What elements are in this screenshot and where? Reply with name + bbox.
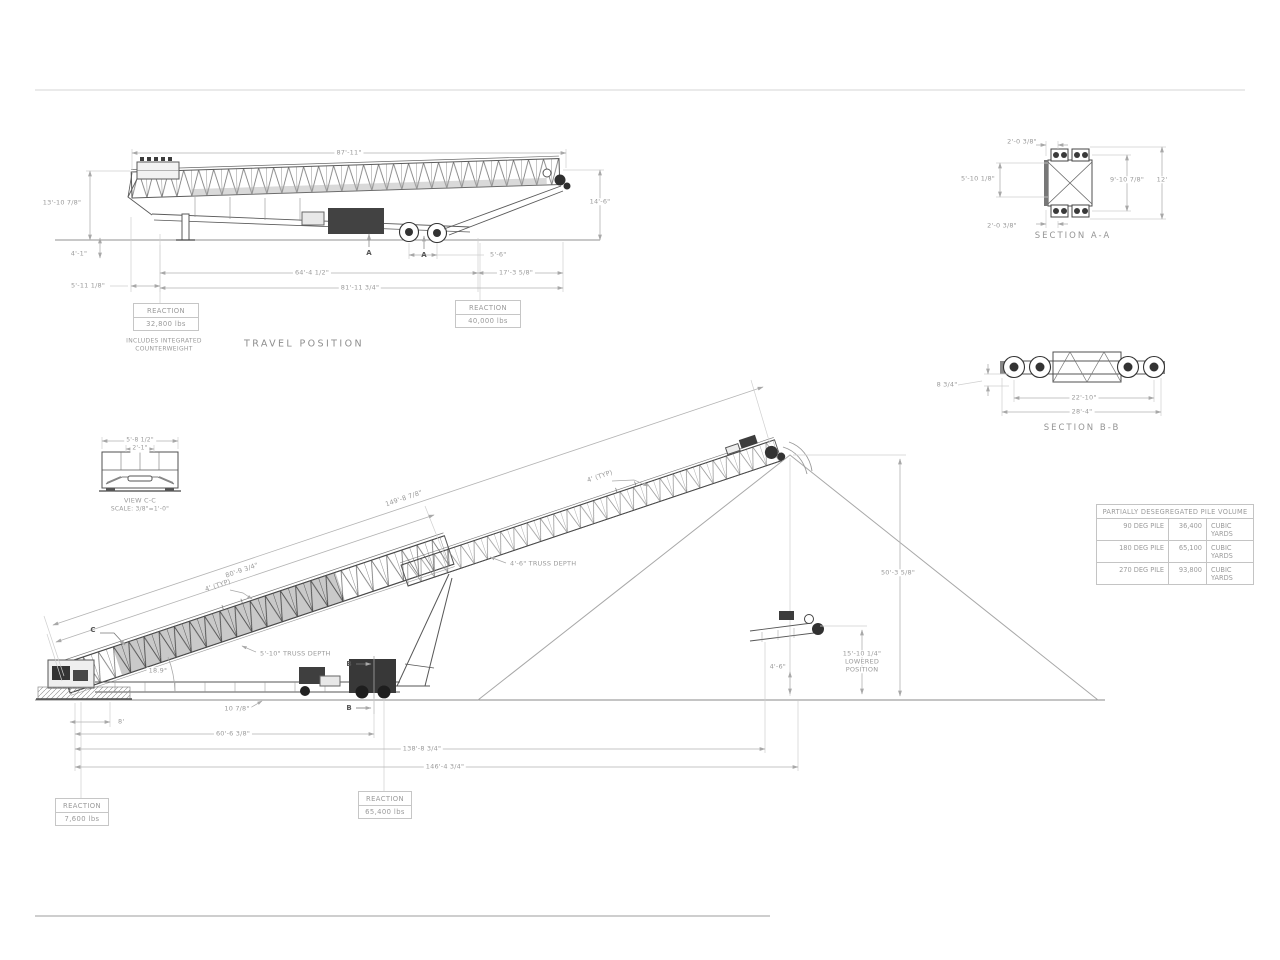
table-row: 270 DEG PILE 93,800 CUBIC YARDS — [1097, 563, 1253, 584]
pile-unit-cell: CUBIC YARDS — [1207, 519, 1251, 540]
view-cc-drawing — [99, 452, 181, 492]
dim-bb-drop: 8 3/4" — [937, 381, 958, 388]
dim-aa-inner-height: 9'-10 7/8" — [1108, 176, 1146, 183]
dim-head-clearance: 4'-6" — [770, 663, 786, 670]
dim-bb-outer-span: 28'-4" — [1070, 408, 1095, 415]
section-b-marker: B — [346, 660, 351, 668]
operating-view-dimensions — [44, 380, 906, 798]
operating-view-drawing — [35, 428, 1105, 714]
counterweight-note-line1: INCLUDES INTEGRATED — [126, 339, 202, 346]
dim-tail-to-head: 146'-4 3/4" — [424, 763, 466, 770]
stockpile-outline — [478, 455, 1098, 700]
section-aa-title: SECTION A-A — [1035, 232, 1111, 242]
dim-axle-span: 64'-4 1/2" — [293, 269, 331, 276]
reaction-box-travel-tail: REACTION 32,800 lbs — [133, 303, 199, 331]
pile-angle-cell: 270 DEG PILE — [1097, 563, 1169, 584]
view-cc-scale: SCALE: 3/8"=1'-0" — [111, 507, 169, 514]
table-row: 180 DEG PILE 65,100 CUBIC YARDS — [1097, 541, 1253, 563]
reaction-label: REACTION — [134, 304, 198, 318]
upper-truss — [398, 428, 787, 586]
dim-axle-spacing: 5'-6" — [490, 251, 506, 258]
section-aa-drawing — [1044, 149, 1092, 217]
dim-aa-top-offset: 2'-0 3/8" — [1007, 138, 1037, 145]
table-row: 90 DEG PILE 36,400 CUBIC YARDS — [1097, 519, 1253, 541]
dim-tail-offset: 8' — [118, 718, 124, 725]
reaction-box-travel-axle: REACTION 40,000 lbs — [455, 300, 521, 328]
dim-aa-bottom-offset: 2'-0 3/8" — [987, 222, 1017, 229]
dim-tail-to-head-lowered: 138'-8 3/4" — [401, 745, 443, 752]
travel-position-title: TRAVEL POSITION — [244, 340, 364, 351]
section-bb-title: SECTION B-B — [1044, 424, 1121, 434]
dim-left-height: 13'-10 7/8" — [43, 199, 81, 206]
dim-tail-to-wheels: 60'-6 3/8" — [214, 730, 252, 737]
drawing-sheet: 87'-11" 13'-10 7/8" 14'-6" 4'-1" 5'-11 1… — [0, 0, 1280, 960]
section-b-marker: B — [346, 704, 351, 712]
reaction-label: REACTION — [56, 799, 108, 813]
dim-lowered-word2: POSITION — [844, 666, 881, 673]
pile-unit-cell: CUBIC YARDS — [1207, 541, 1251, 562]
reaction-label: REACTION — [456, 301, 520, 315]
pile-volume-cell: 93,800 — [1169, 563, 1207, 584]
cribbing — [38, 687, 130, 699]
pile-unit-cell: CUBIC YARDS — [1207, 563, 1251, 584]
dim-right-height: 14'-6" — [588, 198, 613, 205]
lowered-head-detail — [750, 611, 824, 642]
support-pylon — [393, 574, 452, 686]
dim-pile-height: 50'-3 5/8" — [879, 569, 917, 576]
dim-aa-outer-height: 12' — [1155, 176, 1170, 183]
dim-carriage-offset: 10 7/8" — [222, 705, 251, 712]
dim-tail-height: 4'-1" — [71, 250, 87, 257]
dim-incline-angle: 18.9° — [147, 667, 170, 674]
dim-overall-bottom: 81'-11 3/4" — [339, 284, 381, 291]
section-a-marker: A — [421, 251, 426, 259]
pile-volume-table: PARTIALLY DESEGREGATED PILE VOLUME 90 DE… — [1096, 504, 1254, 585]
reaction-box-carriage: REACTION 65,400 lbs — [358, 791, 412, 819]
dim-cc-inner-width: 2'-1" — [130, 446, 149, 453]
reaction-value: 7,600 lbs — [56, 813, 108, 826]
dim-overall-top: 87'-11" — [334, 149, 363, 156]
pile-volume-cell: 36,400 — [1169, 519, 1207, 540]
view-cc-title: VIEW C-C — [124, 497, 156, 504]
dim-cc-outer-width: 5'-8 1/2" — [124, 438, 156, 445]
section-bb-drawing — [1000, 352, 1165, 382]
dim-tail-overhang: 5'-11 1/8" — [71, 282, 105, 289]
drawing-canvas — [0, 0, 1280, 960]
pile-angle-cell: 180 DEG PILE — [1097, 541, 1169, 562]
reaction-value: 40,000 lbs — [456, 315, 520, 328]
pile-angle-cell: 90 DEG PILE — [1097, 519, 1169, 540]
reaction-value: 65,400 lbs — [359, 806, 411, 819]
reaction-label: REACTION — [359, 792, 411, 806]
dim-bb-inner-span: 22'-10" — [1069, 394, 1098, 401]
reaction-box-tail: REACTION 7,600 lbs — [55, 798, 109, 826]
section-c-marker: C — [90, 626, 95, 634]
dim-upper-truss-depth: 4'-6" TRUSS DEPTH — [510, 560, 576, 567]
travel-position-drawing — [55, 156, 600, 249]
dim-head-overhang: 17'-3 5/8" — [497, 269, 535, 276]
counterweight-note-line2: COUNTERWEIGHT — [135, 347, 192, 354]
pile-volume-cell: 65,100 — [1169, 541, 1207, 562]
section-a-marker: A — [366, 249, 371, 257]
pile-table-header: PARTIALLY DESEGREGATED PILE VOLUME — [1097, 505, 1253, 519]
reaction-value: 32,800 lbs — [134, 318, 198, 331]
dim-lower-truss-depth: 5'-10" TRUSS DEPTH — [260, 650, 331, 657]
dim-aa-left-width: 5'-10 1/8" — [961, 175, 995, 182]
